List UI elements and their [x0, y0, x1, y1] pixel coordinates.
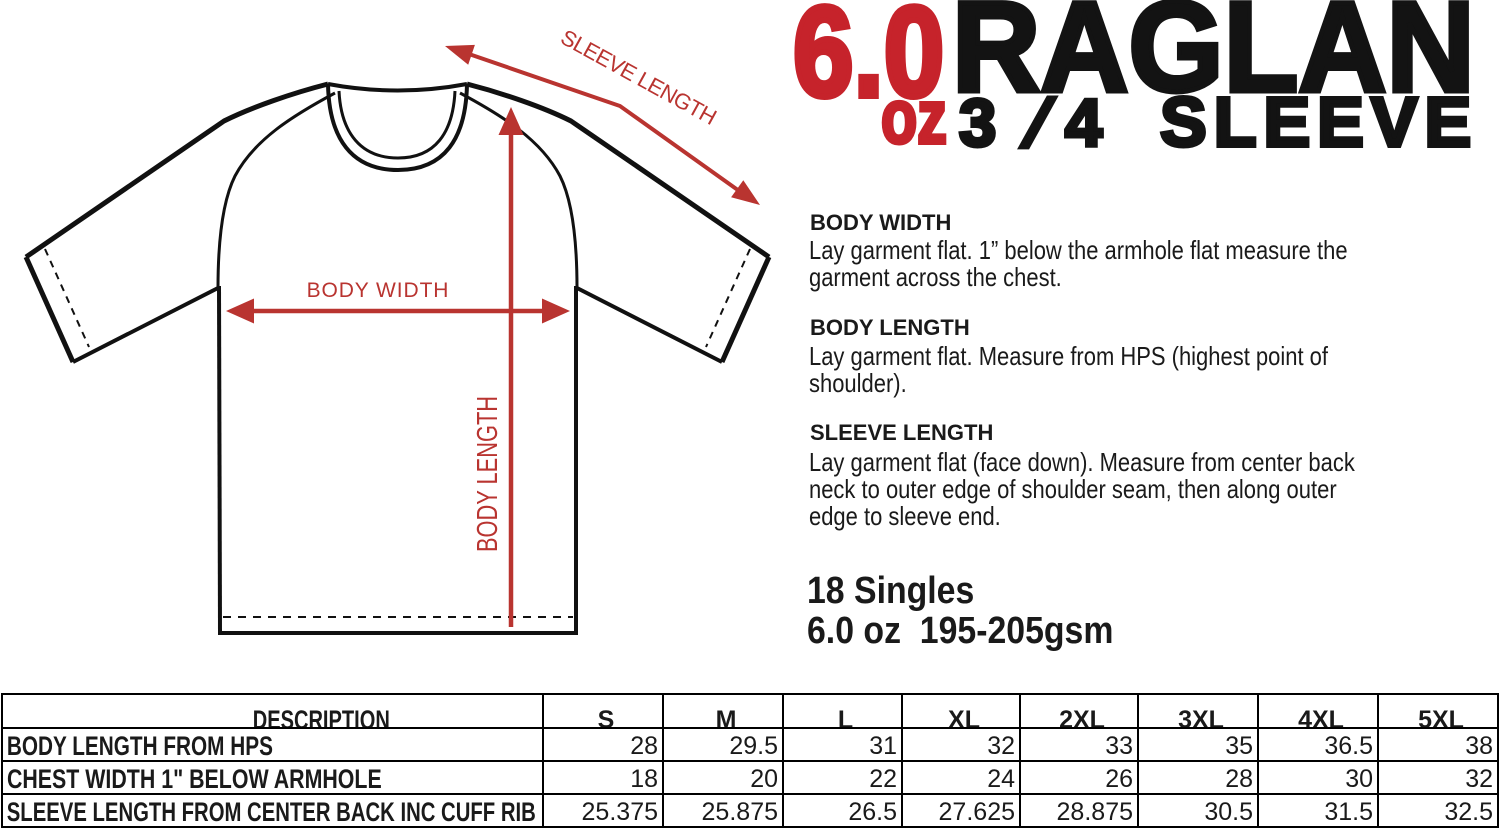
svg-text:BODY WIDTH: BODY WIDTH: [307, 279, 450, 302]
svg-text:3: 3: [959, 86, 996, 161]
svg-text:4: 4: [1065, 86, 1102, 161]
svg-text:BODY LENGTH: BODY LENGTH: [472, 396, 504, 552]
svg-text:oz: oz: [881, 75, 947, 160]
svg-text:SLEEVE: SLEEVE: [1160, 83, 1478, 161]
